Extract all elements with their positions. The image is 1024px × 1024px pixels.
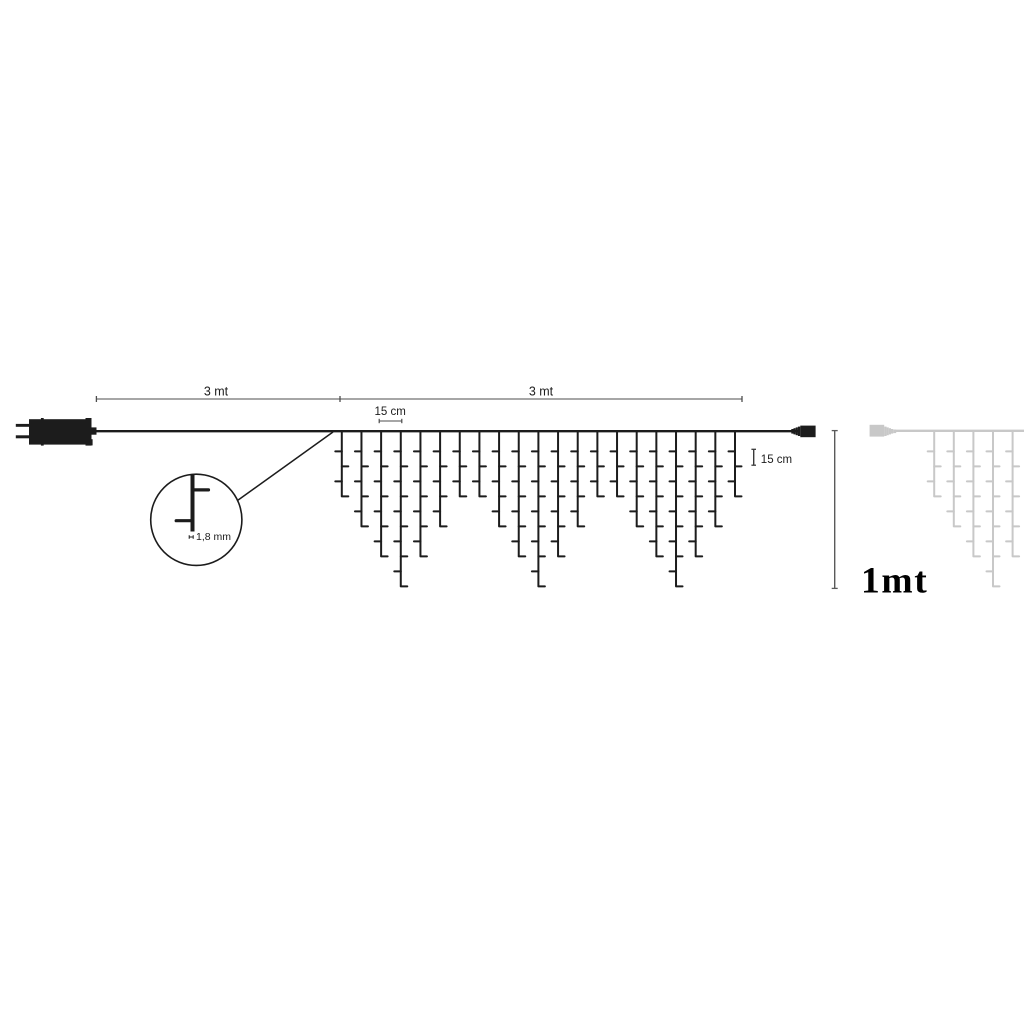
svg-text:3 mt: 3 mt: [204, 385, 229, 399]
svg-text:3 mt: 3 mt: [529, 385, 554, 399]
svg-text:1,8 mm: 1,8 mm: [196, 531, 231, 543]
svg-text:1mt: 1mt: [861, 561, 928, 602]
svg-text:15 cm: 15 cm: [761, 454, 792, 466]
svg-text:15 cm: 15 cm: [375, 406, 406, 418]
